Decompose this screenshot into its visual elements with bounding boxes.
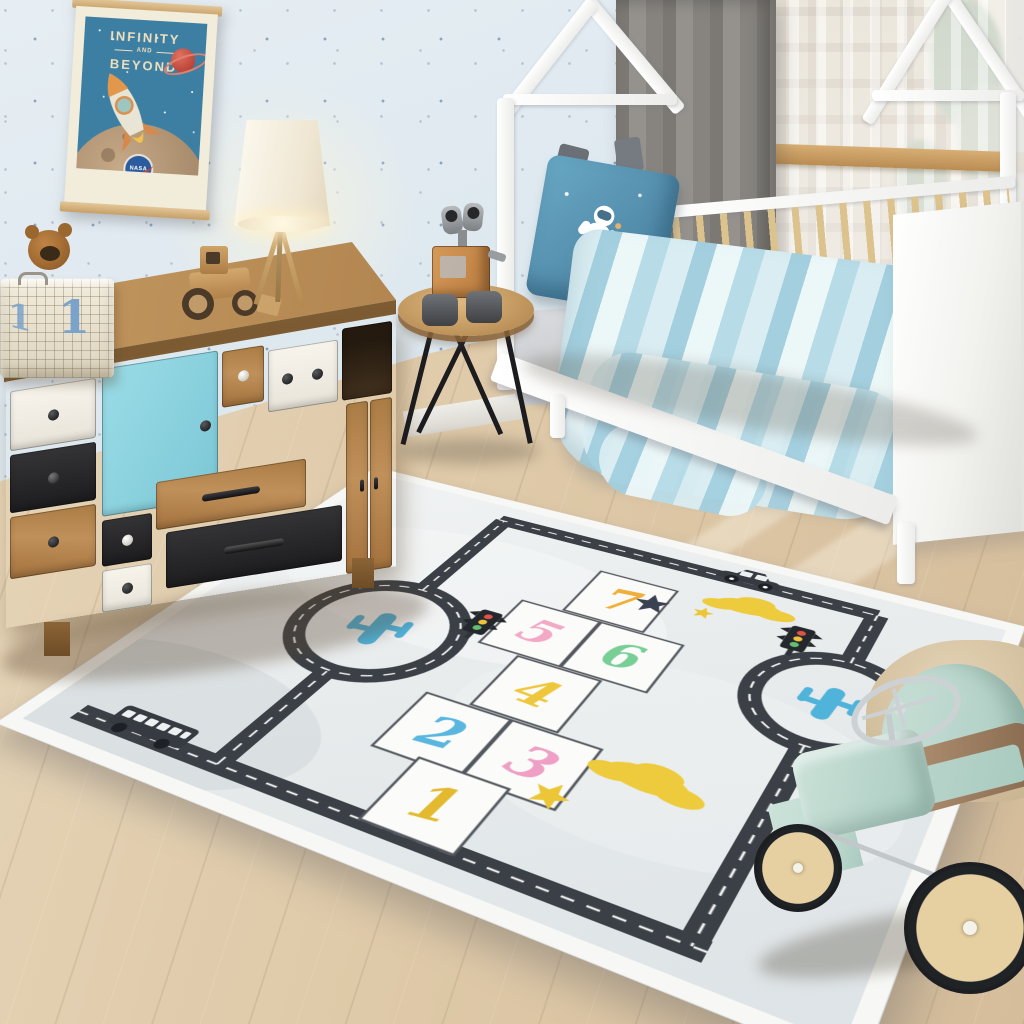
toycar-rear-wheel <box>904 862 1024 994</box>
ride-on-toy-car <box>0 0 1024 1024</box>
wheel-hub <box>793 863 803 873</box>
wheel-hub <box>963 921 977 935</box>
toycar-front-wheel <box>754 824 842 912</box>
kids-room-photo: INFINITY AND BEYOND NAS <box>0 0 1024 1024</box>
toycar-hood <box>790 726 938 841</box>
